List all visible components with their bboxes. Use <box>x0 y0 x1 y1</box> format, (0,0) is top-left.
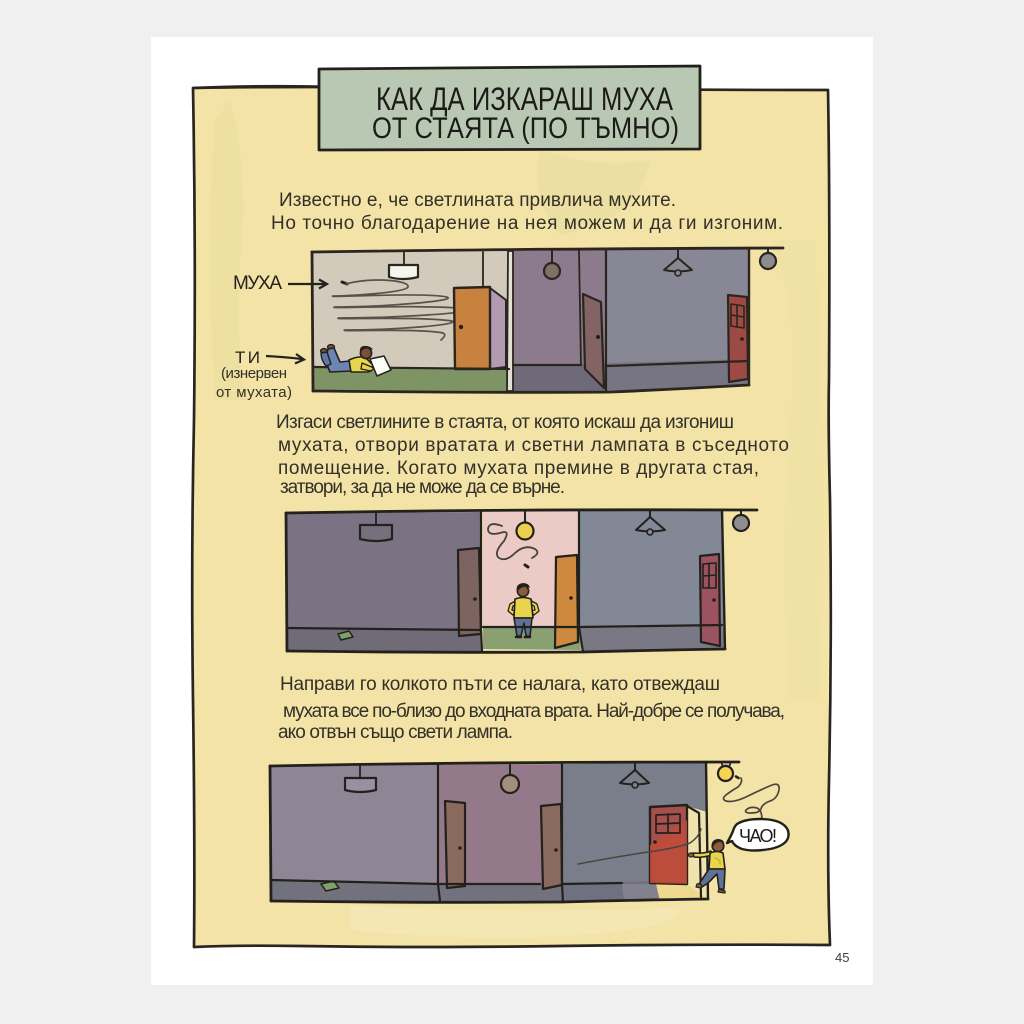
svg-text:(изнервен: (изнервен <box>221 365 287 382</box>
svg-text:МУХА: МУХА <box>233 273 282 294</box>
svg-text:ако отвън също свети лампа.: ако отвън също свети лампа. <box>278 722 513 743</box>
svg-text:Известно е, че светлината прив: Известно е, че светлината привлича мухит… <box>279 190 676 211</box>
svg-text:45: 45 <box>835 950 849 965</box>
svg-text:ОТ СТАЯТА (ПО ТЪМНО): ОТ СТАЯТА (ПО ТЪМНО) <box>372 112 679 145</box>
svg-text:ЧАО!: ЧАО! <box>739 826 777 846</box>
svg-text:мухата все по-близо до входнат: мухата все по-близо до входната врата. Н… <box>283 701 785 722</box>
svg-text:Направи го колкото пъти се нал: Направи го колкото пъти се налага, като … <box>280 674 720 695</box>
svg-text:мухата, отвори вратата и свет: мухата, отвори вратата и светни лампата … <box>278 435 789 456</box>
svg-text:Но точно благодарение на нея м: Но точно благодарение на нея можем и да … <box>271 213 783 234</box>
svg-text:затвори, за да не може да се в: затвори, за да не може да се върне. <box>280 477 565 498</box>
svg-text:помещение. Когато мухата преми: помещение. Когато мухата премине в друга… <box>278 458 759 479</box>
svg-text:от мухата): от мухата) <box>216 384 292 401</box>
svg-text:Изгаси светлините в стаята, от: Изгаси светлините в стаята, от която иск… <box>276 412 734 433</box>
